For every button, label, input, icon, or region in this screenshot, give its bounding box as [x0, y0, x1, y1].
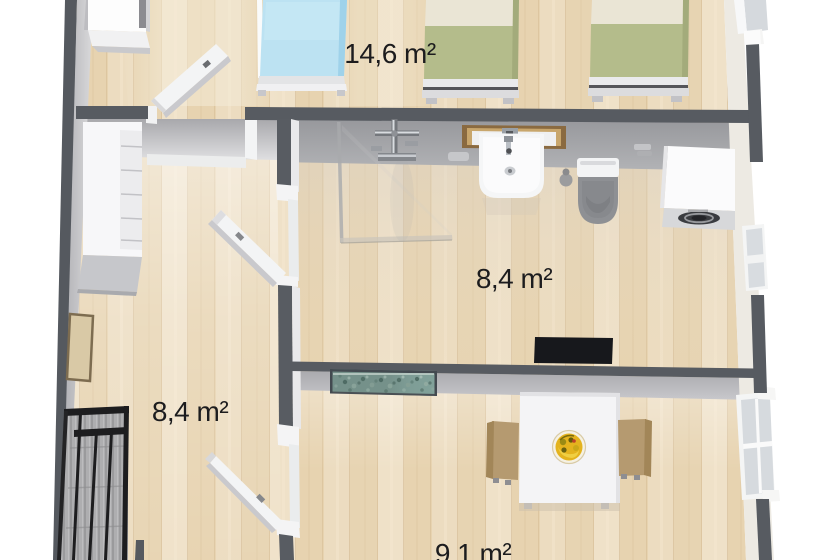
svg-text:8,4 m²: 8,4 m²	[476, 263, 553, 294]
svg-text:9,1 m²: 9,1 m²	[435, 538, 512, 560]
svg-text:14,6 m²: 14,6 m²	[344, 38, 436, 69]
svg-text:8,4 m²: 8,4 m²	[152, 396, 229, 427]
